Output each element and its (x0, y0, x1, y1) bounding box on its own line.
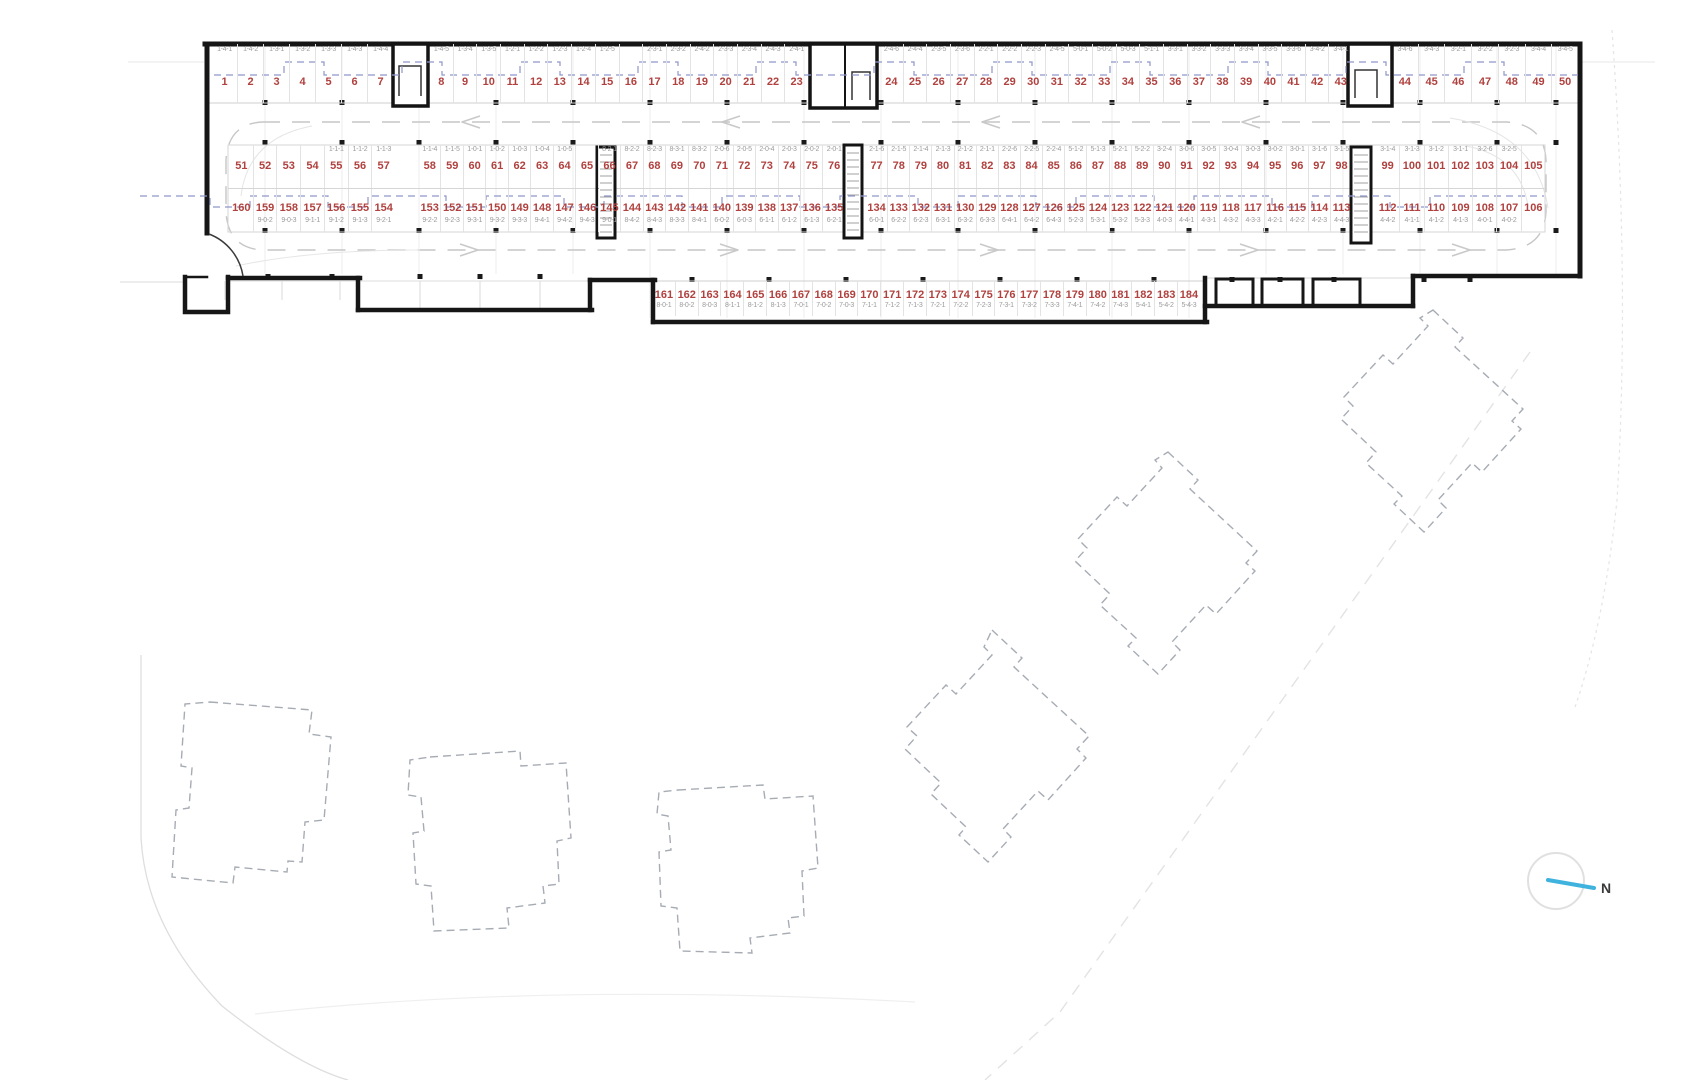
parking-space: 3-1-2101 (1424, 145, 1448, 188)
unit-code: 8-1-2 (744, 302, 766, 310)
unit-code: 6-3-1 (932, 217, 953, 225)
space-number: 168 (813, 289, 835, 301)
parking-space: 2-3-627 (950, 44, 974, 103)
unit-code: 2-0-4 (756, 146, 777, 154)
parking-space: 2-4-531 (1045, 44, 1069, 103)
parking-space: 2-1-281 (954, 145, 976, 188)
unit-code: 5-1-1 (1140, 46, 1163, 54)
unit-code: 9-2-1 (372, 217, 395, 225)
parking-space: 3-3-439 (1234, 44, 1258, 103)
unit-code: 8-4-1 (689, 217, 710, 225)
space-number: 143 (644, 202, 665, 214)
unit-code: 1-0-3 (509, 146, 530, 154)
space-number: 141 (689, 202, 710, 214)
parking-space: 7-4-3181 (1109, 281, 1132, 316)
unit-code: 9-3-3 (509, 217, 530, 225)
unit-code: 9-1-2 (325, 217, 348, 225)
space-number: 22 (762, 76, 785, 88)
parking-space: 1-0-261 (485, 145, 507, 188)
parking-space: 3-2-348 (1498, 44, 1525, 103)
parking-space: 2-2-330 (1021, 44, 1045, 103)
unit-code: 2-1-6 (866, 146, 887, 154)
unit-code: 7-1-3 (904, 302, 926, 310)
space-number: 79 (910, 160, 931, 172)
parking-space: 2-1-380 (931, 145, 953, 188)
space-number: 135 (823, 202, 844, 214)
space-number: 144 (621, 202, 642, 214)
footprint-diagonal-2 (1075, 452, 1257, 674)
space-number: 100 (1400, 160, 1423, 172)
space-number: 162 (676, 289, 698, 301)
space-number: 165 (744, 289, 766, 301)
space-number: 4 (290, 76, 315, 88)
space-number: 117 (1242, 202, 1263, 214)
parking-space: 6-3-2130 (954, 189, 976, 232)
unit-code: 6-2-1 (823, 217, 844, 225)
space-number: 184 (1178, 289, 1200, 301)
parking-space: 2-2-683 (998, 145, 1020, 188)
space-number: 87 (1087, 160, 1108, 172)
unit-code: 9-1-1 (301, 217, 324, 225)
parking-space: 3-3-338 (1210, 44, 1234, 103)
parking-space: 2-0-671 (710, 145, 732, 188)
unit-code: 1-3-4 (454, 46, 477, 54)
space-number: 150 (486, 202, 507, 214)
unit-code: 6-4-1 (999, 217, 1020, 225)
space-number: 147 (554, 202, 575, 214)
space-number: 57 (372, 160, 395, 172)
parking-space: 6-0-1134 (866, 189, 887, 232)
parking-space: 5-3-3122 (1131, 189, 1153, 232)
row1-segment-4: 3-4-6443-4-3453-2-1463-2-2473-2-3483-4-4… (1392, 44, 1578, 103)
space-number: 172 (904, 289, 926, 301)
space-number: 134 (866, 202, 887, 214)
space-number: 12 (525, 76, 548, 88)
parking-space: 9-1-3155 (348, 189, 372, 232)
unit-code: 8-2-3 (644, 146, 665, 154)
parking-space: 1-3-510 (476, 44, 500, 103)
space-number: 142 (666, 202, 687, 214)
space-number: 51 (230, 160, 253, 172)
parking-space: 3-1-1102 (1448, 145, 1472, 188)
unit-code: 7-2-2 (950, 302, 972, 310)
space-number: 40 (1259, 76, 1282, 88)
unit-code: 5-2-1 (1110, 146, 1131, 154)
unit-code: 1-1-4 (419, 146, 440, 154)
unit-code: 2-0-6 (711, 146, 732, 154)
unit-code: 1-0-2 (486, 146, 507, 154)
space-number: 152 (441, 202, 462, 214)
parking-space: 2-3-117 (642, 44, 666, 103)
parking-space: 4-1-3109 (1448, 189, 1472, 232)
unit-code: 3-1-6 (1309, 146, 1330, 154)
unit-code: 7-3-2 (1018, 302, 1040, 310)
space-number: 60 (464, 160, 485, 172)
unit-code: 2-3-3 (714, 46, 737, 54)
space-number: 39 (1235, 76, 1258, 88)
unit-code: 3-0-6 (1176, 146, 1197, 154)
space-number: 155 (349, 202, 372, 214)
unit-code: 5-4-2 (1155, 302, 1177, 310)
unit-code: 7-4-2 (1087, 302, 1109, 310)
parking-space: 4-3-3117 (1241, 189, 1263, 232)
parking-space: 2-0-176 (822, 145, 844, 188)
parking-space: 3-3-237 (1187, 44, 1211, 103)
space-number: 124 (1087, 202, 1108, 214)
unit-code: 1-2-2 (525, 46, 548, 54)
space-number: 129 (977, 202, 998, 214)
space-number: 137 (779, 202, 800, 214)
space-number: 92 (1198, 160, 1219, 172)
parking-space: 54 (300, 145, 324, 188)
parking-space: 160 (230, 189, 253, 232)
space-number: 115 (1287, 202, 1308, 214)
space-number: 41 (1282, 76, 1305, 88)
space-number: 156 (325, 202, 348, 214)
unit-code: 8-2-2 (621, 146, 642, 154)
parking-space: 4-3-1119 (1197, 189, 1219, 232)
space-number: 28 (975, 76, 998, 88)
space-number: 8 (430, 76, 453, 88)
space-number: 90 (1154, 160, 1175, 172)
parking-space: 2-4-425 (903, 44, 927, 103)
unit-code: 2-2-4 (1043, 146, 1064, 154)
parking-space: 8-1-1164 (720, 281, 743, 316)
space-number: 125 (1065, 202, 1086, 214)
unit-code: 3-3-4 (1235, 46, 1258, 54)
space-number: 36 (1164, 76, 1187, 88)
space-number: 54 (301, 160, 324, 172)
unit-code: 2-3-5 (927, 46, 950, 54)
unit-code: 2-3-2 (667, 46, 690, 54)
parking-space: 2-2-229 (997, 44, 1021, 103)
unit-code: 2-1-4 (910, 146, 931, 154)
space-number: 27 (951, 76, 974, 88)
space-number: 164 (721, 289, 743, 301)
parking-space: 7-1-2171 (880, 281, 903, 316)
space-number: 14 (572, 76, 595, 88)
parking-space: 3-2-490 (1153, 145, 1175, 188)
space-number: 43 (1329, 76, 1352, 88)
parking-space: 2-1-578 (887, 145, 909, 188)
space-number: 183 (1155, 289, 1177, 301)
parking-space: 9-3-1151 (463, 189, 485, 232)
space-number: 140 (711, 202, 732, 214)
space-number: 59 (441, 160, 462, 172)
space-number: 154 (372, 202, 395, 214)
unit-code: 6-0-2 (711, 217, 732, 225)
space-number: 104 (1497, 160, 1520, 172)
parking-space: 3-2-5104 (1496, 145, 1520, 188)
unit-code: 1-1-1 (325, 146, 348, 154)
parking-space: 3-4-242 (1305, 44, 1329, 103)
parking-space: 8-3-3142 (665, 189, 687, 232)
space-number: 180 (1087, 289, 1109, 301)
unit-code: 4-0-3 (1154, 217, 1175, 225)
parking-space: 1-4-36 (341, 44, 367, 103)
parking-space: 5-2-289 (1131, 145, 1153, 188)
unit-code: 8-2-1 (599, 146, 620, 154)
parking-space: 5-1-387 (1086, 145, 1108, 188)
unit-code: 6-1-2 (779, 217, 800, 225)
parking-space: 6-4-1128 (998, 189, 1020, 232)
unit-code: 2-4-4 (904, 46, 927, 54)
space-number: 86 (1065, 160, 1086, 172)
space-number: 1 (212, 76, 237, 88)
parking-space: 8-0-1161 (653, 281, 675, 316)
unit-code: 4-3-1 (1198, 217, 1219, 225)
space-number: 98 (1331, 160, 1352, 172)
parking-space: 5-0-233 (1092, 44, 1116, 103)
row2_lower-segment-4: 4-4-21124-1-11114-1-21104-1-31094-0-1108… (1376, 189, 1545, 232)
parking-space: 8-3-270 (688, 145, 710, 188)
space-number: 166 (767, 289, 789, 301)
space-number: 120 (1176, 202, 1197, 214)
parking-space: 7-2-3175 (972, 281, 995, 316)
space-number: 82 (977, 160, 998, 172)
unit-code: 6-2-3 (910, 217, 931, 225)
parking-space: 3-0-394 (1241, 145, 1263, 188)
unit-code: 2-2-6 (999, 146, 1020, 154)
parking-space: 1-1-256 (348, 145, 372, 188)
space-number: 23 (785, 76, 808, 88)
unit-code: 3-4-6 (1392, 46, 1418, 54)
parking-space: 7-2-1173 (926, 281, 949, 316)
space-number: 149 (509, 202, 530, 214)
unit-code: 1-2-4 (572, 46, 595, 54)
parking-space: 6-2-3132 (909, 189, 931, 232)
parking-space: 2-0-473 (755, 145, 777, 188)
space-number: 55 (325, 160, 348, 172)
space-number: 108 (1473, 202, 1496, 214)
unit-code: 3-1-1 (1449, 146, 1472, 154)
unit-code: 5-0-2 (1093, 46, 1116, 54)
parking-space: 6-4-2127 (1020, 189, 1042, 232)
parking-space: 2-0-374 (778, 145, 800, 188)
space-number: 19 (691, 76, 714, 88)
space-number: 3 (264, 76, 289, 88)
space-number: 153 (419, 202, 440, 214)
parking-space: 1-4-11 (212, 44, 237, 103)
space-number: 72 (734, 160, 755, 172)
unit-code: 7-3-3 (1041, 302, 1063, 310)
space-number: 89 (1132, 160, 1153, 172)
unit-code: 2-2-3 (1022, 46, 1045, 54)
space-number: 85 (1043, 160, 1064, 172)
space-number: 29 (998, 76, 1021, 88)
unit-code: 8-0-1 (653, 302, 675, 310)
space-number: 83 (999, 160, 1020, 172)
row2_lower-segment-1: 1609-0-21599-0-31589-1-11579-1-21569-1-3… (230, 189, 395, 232)
row1-segment-1: 1-4-111-4-221-3-131-3-241-3-351-4-361-4-… (212, 44, 393, 103)
parking-space: 8-1-3166 (766, 281, 789, 316)
unit-code: 2-3-4 (738, 46, 761, 54)
unit-code: 2-2-1 (975, 46, 998, 54)
parking-space: 5-1-135 (1139, 44, 1163, 103)
parking-space: 9-2-3152 (440, 189, 462, 232)
unit-code: 3-3-3 (1211, 46, 1234, 54)
unit-code: 2-0-1 (823, 146, 844, 154)
parking-space: 1-3-24 (289, 44, 315, 103)
unit-code: 7-2-3 (973, 302, 995, 310)
parking-space: 7-0-1167 (789, 281, 812, 316)
parking-space: 16 (619, 44, 643, 103)
unit-code: 8-3-1 (666, 146, 687, 154)
unit-code: 2-1-2 (955, 146, 976, 154)
space-number: 34 (1117, 76, 1140, 88)
parking-space: 5-3-2123 (1109, 189, 1131, 232)
parking-space: 4-2-2115 (1286, 189, 1308, 232)
space-number: 35 (1140, 76, 1163, 88)
parking-space: 1-4-47 (367, 44, 393, 103)
unit-code: 4-4-2 (1376, 217, 1399, 225)
parking-space: 6-1-2137 (778, 189, 800, 232)
parking-space: 4-2-1116 (1264, 189, 1286, 232)
parking-space: 3-3-540 (1258, 44, 1282, 103)
unit-code: 6-3-3 (977, 217, 998, 225)
space-number: 181 (1110, 289, 1132, 301)
unit-code: 1-3-3 (316, 46, 341, 54)
unit-code: 7-0-1 (790, 302, 812, 310)
unit-code: 5-4-1 (1132, 302, 1154, 310)
parking-space: 2-4-624 (880, 44, 903, 103)
space-number: 119 (1198, 202, 1219, 214)
unit-code: 3-0-3 (1242, 146, 1263, 154)
parking-space: 5-4-1182 (1131, 281, 1154, 316)
unit-code: 8-4-2 (621, 217, 642, 225)
unit-code: 3-4-5 (1552, 46, 1578, 54)
space-number: 64 (554, 160, 575, 172)
unit-code: 1-2-5 (596, 46, 619, 54)
parking-space: 3-2-146 (1444, 44, 1471, 103)
parking-space: 9-2-2153 (419, 189, 440, 232)
space-number: 122 (1132, 202, 1153, 214)
unit-code: 2-2-5 (1021, 146, 1042, 154)
unit-code: 5-1-3 (1087, 146, 1108, 154)
parking-space: 4-0-1108 (1472, 189, 1496, 232)
parking-space: 65 (575, 145, 597, 188)
parking-space: 7-2-2174 (949, 281, 972, 316)
space-number: 68 (644, 160, 665, 172)
unit-code: 3-2-1 (1445, 46, 1471, 54)
space-number: 127 (1021, 202, 1042, 214)
parking-space: 9-1-2156 (324, 189, 348, 232)
north-compass: N (1528, 853, 1611, 909)
parking-space: 106 (1521, 189, 1545, 232)
entrance-door-arc (209, 234, 243, 276)
building-footprint-outlines (172, 310, 1523, 953)
space-number: 56 (349, 160, 372, 172)
unit-code: 1-0-4 (531, 146, 552, 154)
unit-code: 6-1-3 (801, 217, 822, 225)
space-number: 151 (464, 202, 485, 214)
unit-code: 4-0-1 (1473, 217, 1496, 225)
unit-code: 9-3-1 (464, 217, 485, 225)
space-number: 138 (756, 202, 777, 214)
space-number: 58 (419, 160, 440, 172)
unit-code: 1-1-5 (441, 146, 462, 154)
parking-space: 4-1-1111 (1399, 189, 1423, 232)
parking-space: 6-1-1138 (755, 189, 777, 232)
space-number: 114 (1309, 202, 1330, 214)
space-number: 26 (927, 76, 950, 88)
unit-code: 2-2-2 (998, 46, 1021, 54)
parking-space: 8-4-3143 (643, 189, 665, 232)
parking-space: 1-0-160 (463, 145, 485, 188)
parking-space: 7-3-2177 (1017, 281, 1040, 316)
parking-space: 8-4-2144 (620, 189, 642, 232)
space-number: 102 (1449, 160, 1472, 172)
parking-space: 5-4-3184 (1177, 281, 1200, 316)
unit-code: 8-0-3 (699, 302, 721, 310)
space-number: 103 (1473, 160, 1496, 172)
space-number: 99 (1376, 160, 1399, 172)
unit-code: 4-1-2 (1425, 217, 1448, 225)
space-number: 7 (368, 76, 393, 88)
parking-space: 9-3-2150 (485, 189, 507, 232)
parking-space: 1-2-111 (500, 44, 524, 103)
space-number: 9 (454, 76, 477, 88)
unit-code: 8-4-3 (644, 217, 665, 225)
parking-space: 7-4-2180 (1086, 281, 1109, 316)
space-number: 65 (576, 160, 597, 172)
parking-space: 1-3-49 (453, 44, 477, 103)
space-number: 131 (932, 202, 953, 214)
space-number: 97 (1309, 160, 1330, 172)
space-number: 42 (1306, 76, 1329, 88)
space-number: 109 (1449, 202, 1472, 214)
space-number: 33 (1093, 76, 1116, 88)
unit-code: 4-1-1 (1400, 217, 1423, 225)
space-number: 32 (1069, 76, 1092, 88)
space-number: 18 (667, 76, 690, 88)
unit-code: 5-0-1 (1069, 46, 1092, 54)
unit-code: 8-1-3 (767, 302, 789, 310)
space-number: 74 (779, 160, 800, 172)
unit-code: 6-1-1 (756, 217, 777, 225)
space-number: 107 (1497, 202, 1520, 214)
unit-code: 1-1-2 (349, 146, 372, 154)
unit-code: 9-4-1 (531, 217, 552, 225)
row2_lower-segment-3: 6-0-11346-2-21336-2-31326-3-11316-3-2130… (866, 189, 1352, 232)
parking-space: 1-3-13 (263, 44, 289, 103)
unit-code: 4-2-3 (1309, 217, 1330, 225)
parking-space: 8-4-1141 (688, 189, 710, 232)
parking-space: 2-4-219 (690, 44, 714, 103)
parking-space: 3-4-345 (1418, 44, 1445, 103)
parking-space: 8-2-267 (620, 145, 642, 188)
unit-code: 6-0-1 (866, 217, 887, 225)
parking-space: 4-1-2110 (1424, 189, 1448, 232)
unit-code: 5-2-3 (1065, 217, 1086, 225)
unit-code: 3-2-3 (1499, 46, 1525, 54)
parking-space: 2-2-128 (974, 44, 998, 103)
unit-code: 4-4-3 (1331, 217, 1352, 225)
unit-code: 8-3-2 (689, 146, 710, 154)
parking-space: 6-3-1131 (931, 189, 953, 232)
space-number: 113 (1331, 202, 1352, 214)
space-number: 70 (689, 160, 710, 172)
unit-code: 3-1-2 (1425, 146, 1448, 154)
parking-space: 3-2-247 (1471, 44, 1498, 103)
parking-space: 1-1-357 (371, 145, 395, 188)
parking-space: 4-3-2118 (1219, 189, 1241, 232)
space-number: 75 (801, 160, 822, 172)
space-number: 49 (1526, 76, 1552, 88)
unit-code: 3-1-5 (1331, 146, 1352, 154)
parking-space: 6-2-1135 (822, 189, 844, 232)
parking-space: 9-4-2147 (553, 189, 575, 232)
